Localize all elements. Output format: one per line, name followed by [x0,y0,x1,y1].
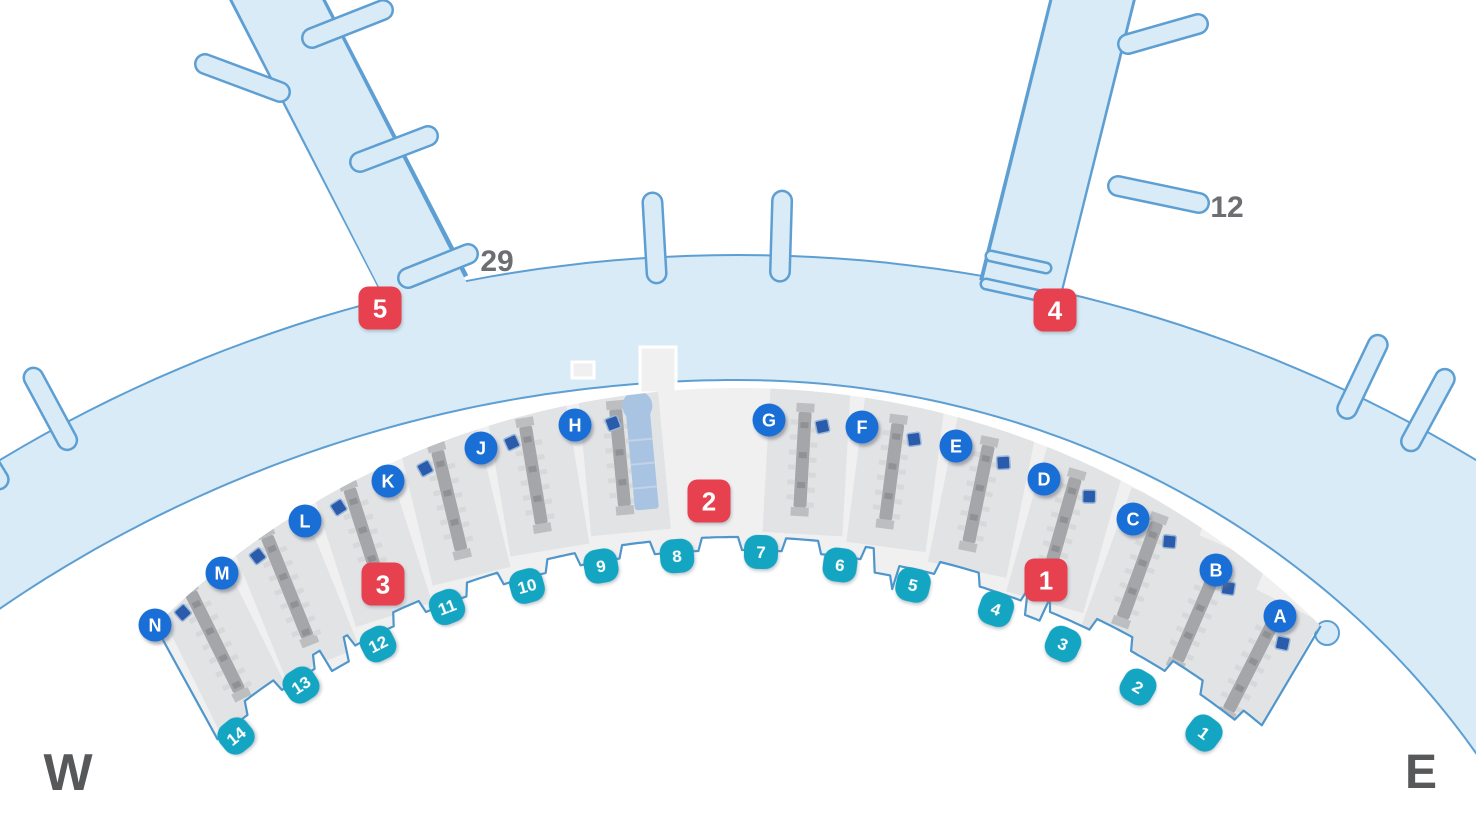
facility-marker [1083,490,1096,503]
checkin-desk [897,484,905,490]
counter-badge-M[interactable]: M [206,557,239,590]
entrance-number: 4 [1048,296,1063,326]
door-number: 7 [756,543,766,562]
island-segment [892,433,901,440]
counter-letter: N [149,615,162,635]
door-badge-1[interactable]: 1 [1180,709,1228,757]
checkin-desk [880,445,888,451]
entrance-badge-3[interactable]: 3 [362,563,405,606]
entrance-badge-4[interactable]: 4 [1034,289,1077,332]
building-small-annex [572,362,594,378]
counter-letter: B [1210,560,1223,580]
island-end-cap [796,403,814,413]
counter-badge-H[interactable]: H [559,409,592,442]
counter-letter: H [569,415,582,435]
counter-letter: F [857,417,868,437]
counter-badge-F[interactable]: F [846,411,879,444]
checkin-desk [609,493,616,499]
counter-badge-J[interactable]: J [465,432,498,465]
checkin-desk [788,464,795,469]
checkin-desk [898,469,906,475]
entrance-number: 1 [1039,566,1053,596]
facility-marker [997,456,1011,470]
compass-west-label: W [43,744,93,802]
band-bridge-c2 [780,201,782,272]
door-badge-3[interactable]: 3 [1041,622,1086,667]
counter-letter: E [950,436,962,456]
building-center-annex [640,347,676,393]
checkin-desk [900,454,908,460]
compass-east-label: E [1405,746,1437,799]
door-badge-2[interactable]: 2 [1115,664,1162,711]
entrance-badge-5[interactable]: 5 [359,287,402,330]
checkin-desk [790,434,797,439]
entrance-number: 3 [376,570,390,600]
checkin-desk [605,448,612,454]
counter-letter: M [215,563,230,583]
island-segment [800,422,808,428]
counter-letter: K [382,471,395,491]
checkin-zone-H [578,383,671,536]
counter-letter: J [476,438,486,458]
airport-terminal-map: 1234567891011121314 12345 ABCDEFGHJKLMN … [0,0,1476,830]
counter-badge-K[interactable]: K [372,465,405,498]
checkin-desk [809,472,816,477]
entrance-number: 2 [702,487,716,517]
checkin-desk [607,463,614,469]
entrance-badge-2[interactable]: 2 [688,480,731,523]
counter-badge-A[interactable]: A [1264,600,1297,633]
island-segment [618,479,627,486]
checkin-desk [790,419,797,424]
east-pier [1012,0,1100,326]
door-number: 8 [672,547,683,567]
island-end-cap [790,507,808,517]
facility-marker [907,432,922,447]
checkin-desk [882,430,890,436]
checkin-desk [786,494,793,499]
island-segment [884,493,893,500]
counter-badge-E[interactable]: E [940,430,973,463]
checkin-desk [807,502,814,507]
checkin-desk [809,458,816,463]
checkin-desk [893,514,901,520]
entrance-number: 5 [373,294,387,324]
counter-badge-D[interactable]: D [1028,463,1061,496]
counter-badge-C[interactable]: C [1117,503,1150,536]
counter-badge-G[interactable]: G [753,404,786,437]
checkin-desk [808,487,815,492]
band-bridge-c1 [652,202,656,273]
counter-badge-N[interactable]: N [139,609,172,642]
facility-marker [1162,535,1176,549]
terminal-map-canvas: 1234567891011121314 12345 ABCDEFGHJKLMN … [0,0,1476,830]
pier-gate-label-29: 29 [480,245,513,278]
counter-letter: L [300,511,311,531]
counter-letter: G [762,410,776,430]
checkin-desk [877,474,885,480]
counter-badge-L[interactable]: L [289,505,322,538]
entrance-badge-1[interactable]: 1 [1025,559,1068,602]
door-badge-8[interactable]: 8 [659,538,695,574]
checkin-desk [608,478,615,484]
island-end-cap [606,400,625,411]
checkin-desk [789,449,796,454]
counter-letter: C [1127,509,1140,529]
checkin-desk [873,504,881,510]
counter-badge-B[interactable]: B [1200,554,1233,587]
checkin-desk [875,489,883,495]
island-segment [615,449,624,456]
island-segment [799,452,807,458]
counter-letter: D [1038,469,1051,489]
facility-marker [815,419,830,434]
door-badge-7[interactable]: 7 [744,535,779,570]
checkin-desk [879,460,887,466]
island-segment [797,482,805,488]
island-end-cap [616,505,635,516]
checkin-desk [810,443,817,448]
checkin-desk [604,433,611,439]
island-segment [888,463,897,470]
counter-letter: A [1274,606,1287,626]
east-pier-bridge-2 [1118,186,1199,203]
pier-gate-label-12: 12 [1210,191,1243,224]
checkin-desk [895,499,903,505]
facility-marker [1275,636,1290,651]
checkin-desk [787,479,794,484]
east-pier-bridge-1 [1128,24,1198,44]
